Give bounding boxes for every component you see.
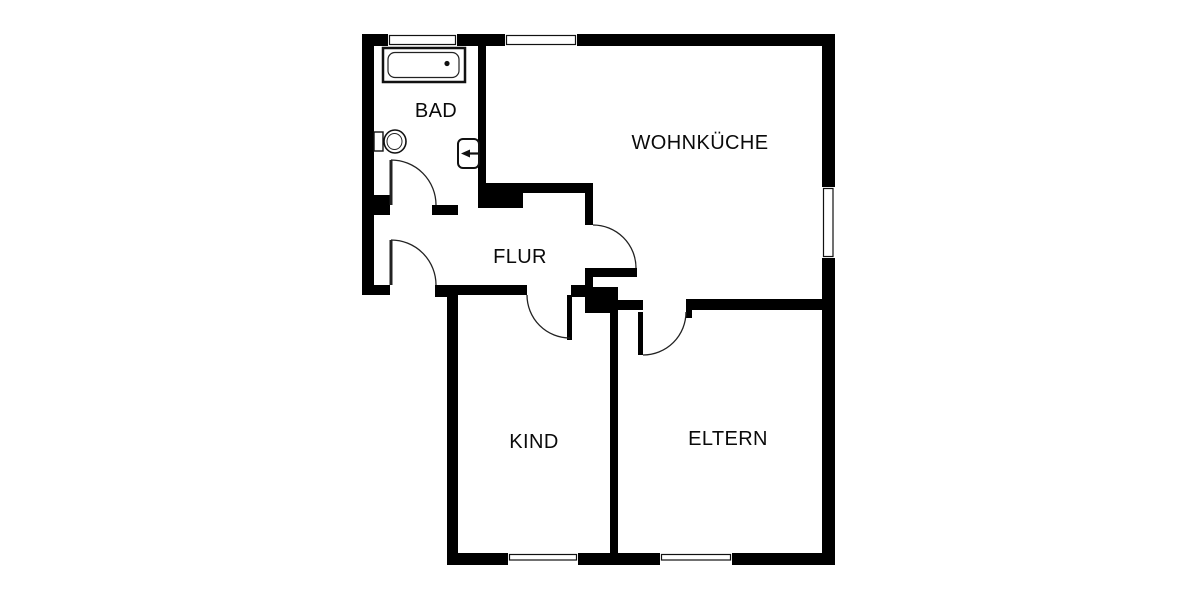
window-wohnkueche-right xyxy=(822,187,835,258)
window-glass xyxy=(662,555,731,561)
room-label-eltern: ELTERN xyxy=(688,428,768,450)
window-bad-top xyxy=(388,34,457,46)
wall-left xyxy=(362,34,374,295)
wall-wohnkueche-hinge-post xyxy=(585,268,593,290)
sink-icon xyxy=(458,139,479,168)
wall-right xyxy=(822,34,835,565)
door-leaf xyxy=(567,295,572,340)
room-label-wohnkueche: WOHNKÜCHE xyxy=(632,132,769,154)
floor-plan-page: BAD WOHNKÜCHE FLUR KIND ELTERN xyxy=(0,0,1200,600)
wall-bad-bottom-left xyxy=(362,195,390,215)
room-label-flur: FLUR xyxy=(493,246,547,268)
door-leaf xyxy=(638,312,643,355)
wall-flur-bottom-bar xyxy=(455,285,527,295)
bathtub-drain xyxy=(444,61,449,66)
door-leaf xyxy=(593,268,637,277)
wall-eltern-door-jamb xyxy=(686,310,692,318)
wall-bottom xyxy=(447,553,835,565)
wall-flur-bottom-right xyxy=(571,285,585,297)
wall-eltern-top-left xyxy=(618,300,643,310)
toilet-tank xyxy=(374,132,383,151)
bathtub-icon xyxy=(383,48,465,82)
wall-flur-bottom-corner xyxy=(435,285,455,297)
wall-kind-eltern-divider xyxy=(610,300,618,555)
window-glass xyxy=(507,36,576,45)
room-label-kind: KIND xyxy=(509,431,558,453)
wall-flur-bottom-left xyxy=(362,285,390,295)
wall-eltern-top-right xyxy=(686,299,822,310)
window-glass xyxy=(824,189,834,257)
window-kind-bottom xyxy=(508,553,578,565)
window-glass xyxy=(390,36,456,45)
wall-bad-bottom-right xyxy=(432,205,458,215)
wall-flur-top-bar xyxy=(523,183,585,193)
wall-wohnkueche-door-jamb xyxy=(585,183,593,225)
wall-flur-top-chunk xyxy=(478,183,523,208)
floor-plan: BAD WOHNKÜCHE FLUR KIND ELTERN xyxy=(0,0,1200,600)
window-eltern-bottom xyxy=(660,553,732,565)
wall-kind-left xyxy=(447,285,458,565)
room-label-bad: BAD xyxy=(415,100,457,122)
window-wohnkueche-top xyxy=(505,34,577,46)
window-glass xyxy=(510,555,577,561)
toilet-icon xyxy=(374,130,406,153)
